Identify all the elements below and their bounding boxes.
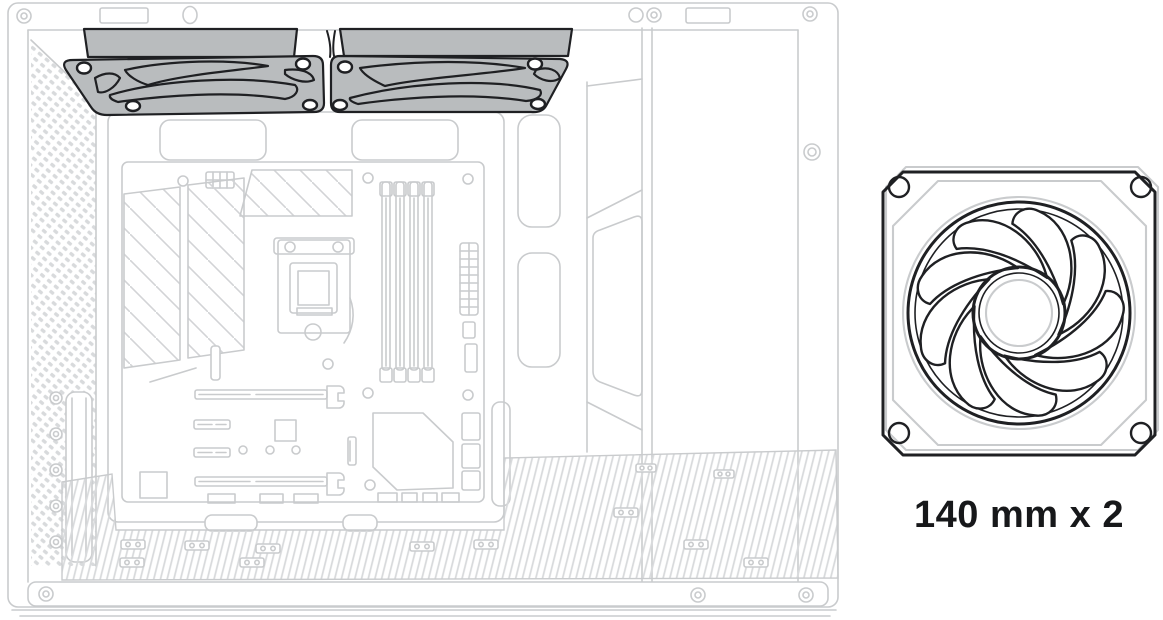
page: 140 mm x 2 [0, 0, 1163, 620]
fan-2-body [340, 29, 572, 56]
ram-slots [380, 182, 434, 382]
fan-1-body [84, 29, 297, 57]
io-heatsink [240, 170, 352, 216]
fan-2 [331, 56, 568, 112]
fan-1 [64, 56, 324, 115]
pcie-slots [194, 386, 344, 495]
cpu-socket [274, 238, 354, 343]
bottom-rail [12, 582, 836, 616]
fan-icon [883, 167, 1158, 455]
fan-gap [327, 31, 330, 57]
cable-grommets [492, 115, 560, 506]
psu-shroud-floor [62, 450, 838, 580]
fan-closeup [883, 167, 1158, 455]
chipset-heatsink [275, 413, 453, 490]
top-fans-highlight [64, 29, 572, 115]
motherboard [122, 162, 484, 503]
atx-power-connector [460, 243, 478, 372]
sata-ports [462, 413, 480, 490]
fan-size-caption: 140 mm x 2 [873, 494, 1163, 537]
vrm-heatsink [124, 178, 244, 382]
